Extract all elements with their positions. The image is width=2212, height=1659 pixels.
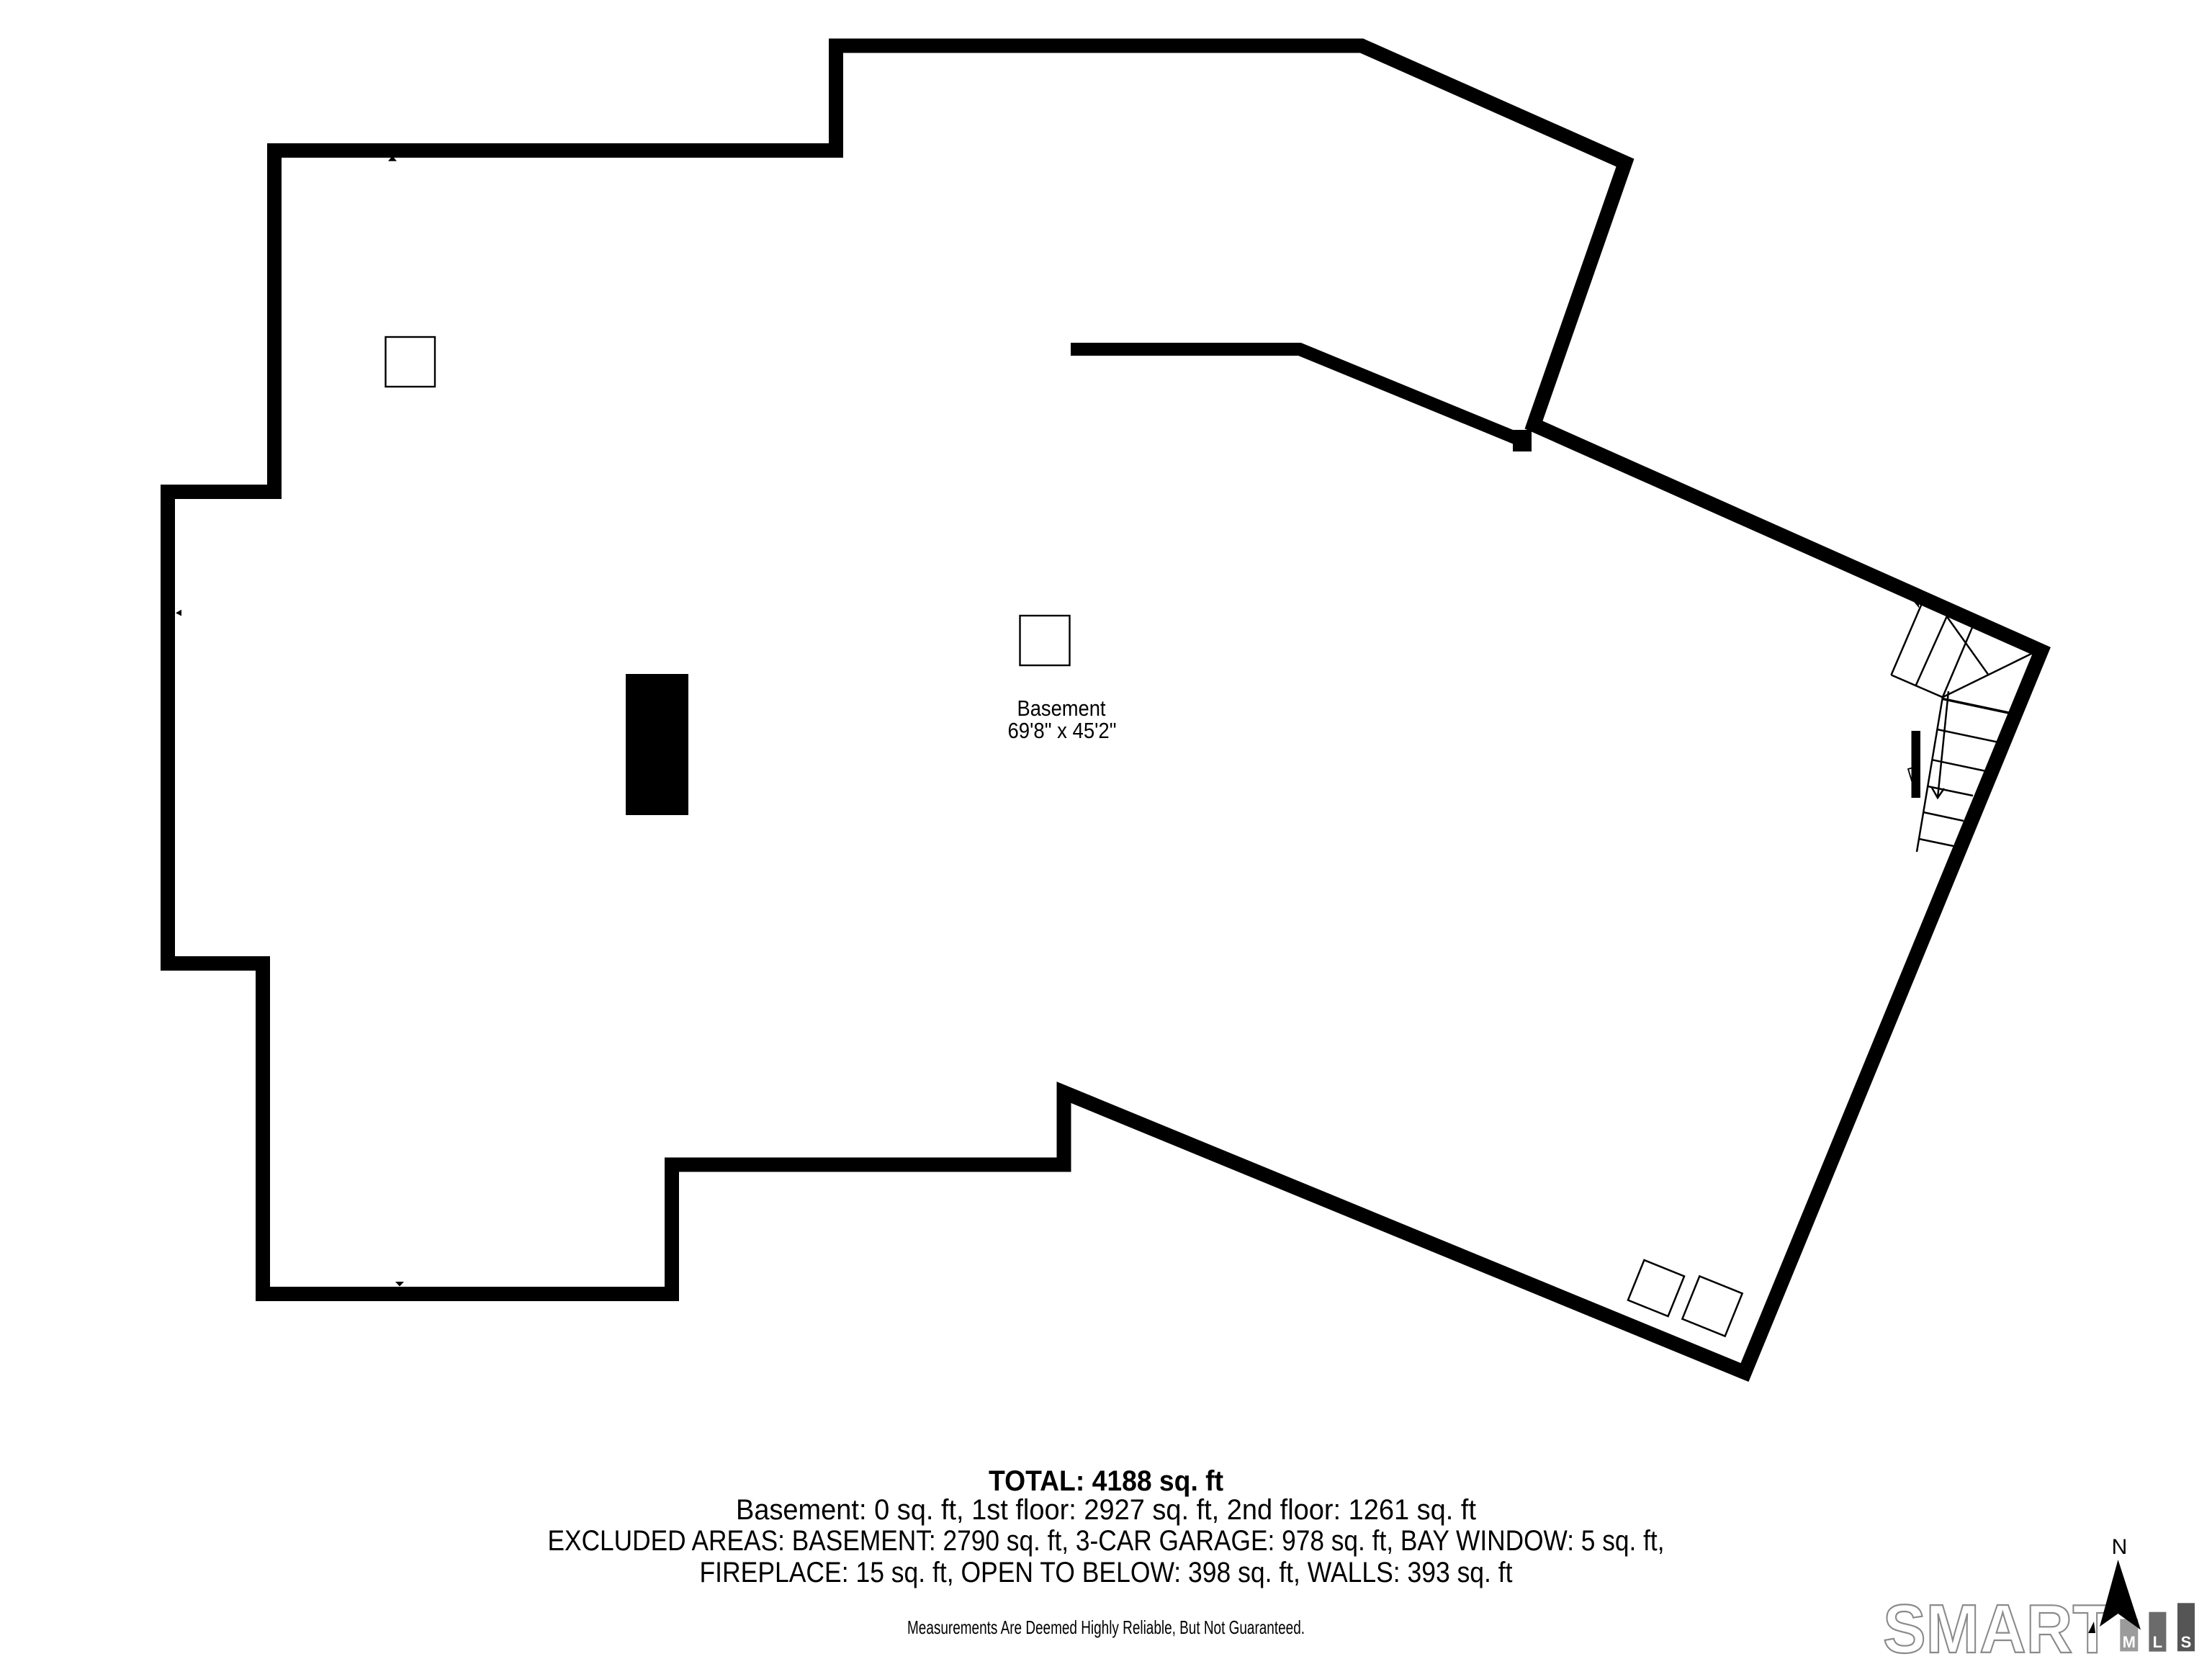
svg-text:Basement: 0 sq. ft, 1st floor:: Basement: 0 sq. ft, 1st floor: 2927 sq. … bbox=[736, 1494, 1476, 1526]
svg-text:SMART: SMART bbox=[1883, 1591, 2112, 1659]
svg-text:N: N bbox=[2112, 1535, 2128, 1559]
svg-text:M: M bbox=[2123, 1633, 2136, 1651]
svg-text:EXCLUDED AREAS: BASEMENT: 2790: EXCLUDED AREAS: BASEMENT: 2790 sq. ft, 3… bbox=[548, 1525, 1665, 1557]
svg-text:S: S bbox=[2181, 1633, 2192, 1651]
svg-text:TOTAL: 4188 sq. ft: TOTAL: 4188 sq. ft bbox=[989, 1465, 1223, 1497]
svg-text:L: L bbox=[2153, 1633, 2162, 1651]
svg-text:Measurements Are Deemed Highly: Measurements Are Deemed Highly Reliable,… bbox=[907, 1617, 1305, 1638]
svg-text:Basement: Basement bbox=[1017, 696, 1106, 721]
svg-text:69'8" x 45'2": 69'8" x 45'2" bbox=[1008, 718, 1117, 743]
svg-text:FIREPLACE: 15 sq. ft, OPEN TO: FIREPLACE: 15 sq. ft, OPEN TO BELOW: 398… bbox=[700, 1557, 1513, 1588]
